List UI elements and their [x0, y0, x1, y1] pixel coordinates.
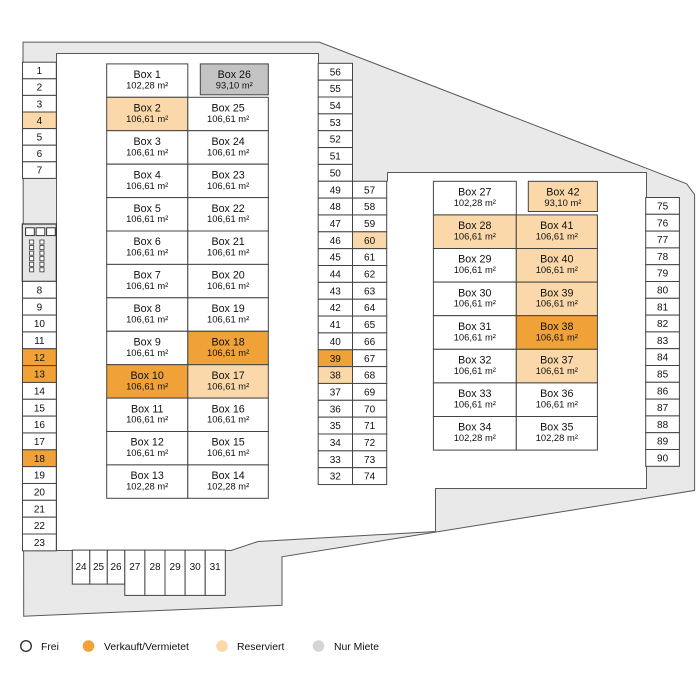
- svg-text:41: 41: [330, 320, 342, 331]
- svg-text:45: 45: [330, 253, 342, 264]
- svg-text:106,61 m²: 106,61 m²: [536, 298, 578, 309]
- svg-text:106,61 m²: 106,61 m²: [126, 247, 168, 258]
- svg-text:86: 86: [657, 386, 669, 397]
- svg-text:67: 67: [364, 354, 376, 365]
- svg-text:58: 58: [364, 202, 376, 213]
- svg-text:23: 23: [34, 538, 46, 549]
- svg-text:51: 51: [330, 152, 342, 163]
- svg-text:90: 90: [657, 454, 669, 465]
- svg-text:65: 65: [364, 320, 376, 331]
- svg-text:106,61 m²: 106,61 m²: [536, 264, 578, 275]
- svg-text:106,61 m²: 106,61 m²: [454, 264, 496, 275]
- svg-text:20: 20: [34, 488, 46, 499]
- svg-text:12: 12: [34, 353, 46, 364]
- svg-text:89: 89: [657, 437, 669, 448]
- svg-text:106,61 m²: 106,61 m²: [536, 399, 578, 410]
- svg-text:78: 78: [657, 252, 669, 263]
- svg-text:106,61 m²: 106,61 m²: [454, 399, 496, 410]
- svg-text:81: 81: [657, 302, 669, 313]
- svg-text:106,61 m²: 106,61 m²: [126, 414, 168, 425]
- svg-text:74: 74: [364, 472, 376, 483]
- svg-text:85: 85: [657, 370, 669, 381]
- svg-text:11: 11: [34, 336, 45, 347]
- svg-text:3: 3: [37, 99, 43, 110]
- svg-text:38: 38: [330, 371, 342, 382]
- svg-text:Frei: Frei: [41, 642, 59, 653]
- svg-text:106,61 m²: 106,61 m²: [207, 313, 249, 324]
- svg-text:44: 44: [330, 270, 342, 281]
- svg-text:16: 16: [34, 420, 46, 431]
- svg-text:Verkauft/Vermietet: Verkauft/Vermietet: [104, 642, 189, 653]
- svg-text:106,61 m²: 106,61 m²: [207, 347, 249, 358]
- svg-text:46: 46: [330, 236, 342, 247]
- svg-text:102,28 m²: 102,28 m²: [454, 197, 496, 208]
- svg-text:69: 69: [364, 388, 376, 399]
- svg-text:106,61 m²: 106,61 m²: [126, 146, 168, 157]
- svg-text:106,61 m²: 106,61 m²: [536, 365, 578, 376]
- svg-text:27: 27: [129, 562, 141, 573]
- svg-text:Reserviert: Reserviert: [237, 642, 284, 653]
- svg-text:106,61 m²: 106,61 m²: [207, 380, 249, 391]
- svg-text:79: 79: [657, 269, 669, 280]
- svg-text:Nur Miete: Nur Miete: [334, 642, 379, 653]
- svg-text:17: 17: [34, 437, 46, 448]
- svg-text:106,61 m²: 106,61 m²: [126, 313, 168, 324]
- svg-text:68: 68: [364, 371, 376, 382]
- svg-text:77: 77: [657, 235, 669, 246]
- svg-text:70: 70: [364, 404, 376, 415]
- svg-text:87: 87: [657, 403, 669, 414]
- svg-text:106,61 m²: 106,61 m²: [207, 247, 249, 258]
- svg-text:106,61 m²: 106,61 m²: [126, 380, 168, 391]
- svg-text:106,61 m²: 106,61 m²: [454, 298, 496, 309]
- svg-text:26: 26: [110, 562, 122, 573]
- svg-text:73: 73: [364, 455, 376, 466]
- svg-text:37: 37: [330, 388, 342, 399]
- svg-text:39: 39: [330, 354, 342, 365]
- svg-text:106,61 m²: 106,61 m²: [454, 231, 496, 242]
- svg-text:10: 10: [34, 319, 46, 330]
- svg-text:56: 56: [330, 67, 342, 78]
- svg-text:106,61 m²: 106,61 m²: [207, 146, 249, 157]
- svg-text:102,28 m²: 102,28 m²: [126, 80, 168, 91]
- svg-text:50: 50: [330, 168, 342, 179]
- svg-text:84: 84: [657, 353, 669, 364]
- svg-text:106,61 m²: 106,61 m²: [207, 113, 249, 124]
- svg-text:1: 1: [37, 66, 43, 77]
- svg-text:106,61 m²: 106,61 m²: [207, 213, 249, 224]
- svg-text:106,61 m²: 106,61 m²: [126, 113, 168, 124]
- svg-text:106,61 m²: 106,61 m²: [126, 347, 168, 358]
- svg-text:40: 40: [330, 337, 342, 348]
- svg-text:63: 63: [364, 286, 376, 297]
- svg-text:64: 64: [364, 303, 376, 314]
- svg-text:106,61 m²: 106,61 m²: [126, 447, 168, 458]
- svg-text:30: 30: [190, 562, 202, 573]
- svg-text:14: 14: [34, 387, 46, 398]
- svg-text:82: 82: [657, 319, 669, 330]
- svg-text:8: 8: [37, 285, 43, 296]
- svg-text:106,61 m²: 106,61 m²: [126, 213, 168, 224]
- svg-text:28: 28: [149, 562, 161, 573]
- svg-text:53: 53: [330, 118, 342, 129]
- svg-text:15: 15: [34, 403, 46, 414]
- svg-text:93,10 m²: 93,10 m²: [216, 80, 253, 91]
- svg-text:66: 66: [364, 337, 376, 348]
- svg-text:57: 57: [364, 185, 376, 196]
- svg-text:5: 5: [37, 133, 43, 144]
- svg-text:106,61 m²: 106,61 m²: [536, 331, 578, 342]
- svg-text:62: 62: [364, 270, 376, 281]
- svg-text:106,61 m²: 106,61 m²: [126, 280, 168, 291]
- svg-text:72: 72: [364, 438, 376, 449]
- svg-text:54: 54: [330, 101, 342, 112]
- svg-text:106,61 m²: 106,61 m²: [207, 414, 249, 425]
- svg-text:43: 43: [330, 286, 342, 297]
- svg-text:25: 25: [93, 562, 105, 573]
- svg-text:33: 33: [330, 455, 342, 466]
- svg-text:2: 2: [37, 83, 43, 94]
- svg-text:22: 22: [34, 521, 46, 532]
- svg-text:106,61 m²: 106,61 m²: [207, 280, 249, 291]
- svg-text:106,61 m²: 106,61 m²: [454, 365, 496, 376]
- svg-text:106,61 m²: 106,61 m²: [536, 231, 578, 242]
- svg-text:6: 6: [37, 149, 43, 160]
- svg-text:102,28 m²: 102,28 m²: [536, 432, 578, 443]
- svg-text:106,61 m²: 106,61 m²: [207, 180, 249, 191]
- svg-text:88: 88: [657, 420, 669, 431]
- svg-text:71: 71: [364, 421, 376, 432]
- svg-text:48: 48: [330, 202, 342, 213]
- svg-text:102,28 m²: 102,28 m²: [454, 432, 496, 443]
- svg-text:102,28 m²: 102,28 m²: [126, 481, 168, 492]
- svg-text:32: 32: [330, 472, 342, 483]
- svg-text:47: 47: [330, 219, 342, 230]
- svg-text:35: 35: [330, 421, 342, 432]
- svg-text:7: 7: [37, 166, 43, 177]
- svg-text:59: 59: [364, 219, 376, 230]
- svg-text:55: 55: [330, 84, 342, 95]
- svg-text:75: 75: [657, 202, 669, 213]
- svg-text:34: 34: [330, 438, 342, 449]
- svg-text:18: 18: [34, 454, 46, 465]
- svg-text:106,61 m²: 106,61 m²: [126, 180, 168, 191]
- svg-text:24: 24: [75, 562, 87, 573]
- svg-text:19: 19: [34, 471, 46, 482]
- svg-text:9: 9: [37, 302, 43, 313]
- svg-text:60: 60: [364, 236, 376, 247]
- svg-text:52: 52: [330, 135, 342, 146]
- svg-text:49: 49: [330, 185, 342, 196]
- svg-text:102,28 m²: 102,28 m²: [207, 481, 249, 492]
- svg-text:93,10 m²: 93,10 m²: [544, 197, 581, 208]
- svg-text:42: 42: [330, 303, 342, 314]
- svg-text:13: 13: [34, 370, 46, 381]
- svg-text:80: 80: [657, 286, 669, 297]
- svg-text:83: 83: [657, 336, 669, 347]
- svg-text:21: 21: [34, 504, 46, 515]
- svg-text:61: 61: [364, 253, 376, 264]
- svg-text:76: 76: [657, 218, 669, 229]
- svg-text:29: 29: [170, 562, 182, 573]
- svg-text:106,61 m²: 106,61 m²: [454, 331, 496, 342]
- svg-text:4: 4: [37, 116, 43, 127]
- svg-text:36: 36: [330, 404, 342, 415]
- svg-text:106,61 m²: 106,61 m²: [207, 447, 249, 458]
- svg-text:31: 31: [210, 562, 222, 573]
